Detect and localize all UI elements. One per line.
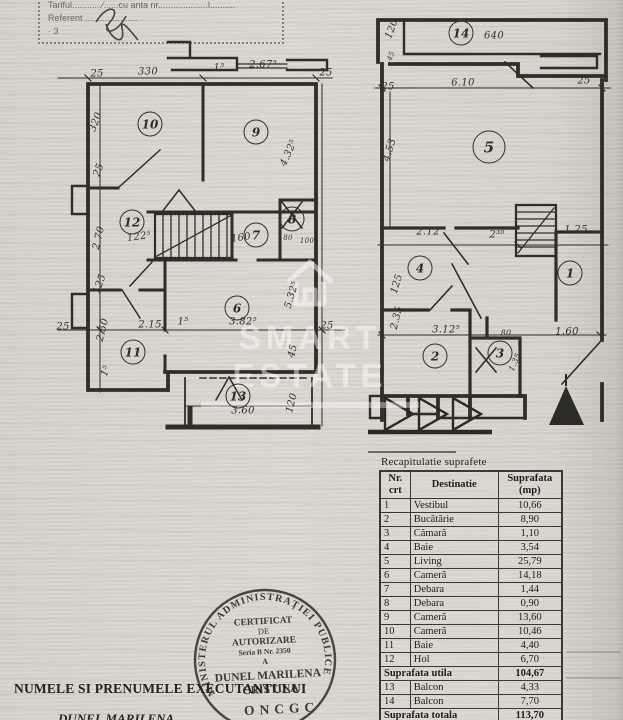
room-number: 5 xyxy=(473,131,506,164)
stamp-line-de: DE xyxy=(258,626,270,637)
header-destinatie: Destinatie xyxy=(410,471,498,499)
scanned-floor-plan-document: Tariful............⁄......cu anta nr....… xyxy=(0,0,623,720)
header-nr-crt: Nr. crt xyxy=(380,471,410,499)
dimension-label: 2.67⁵ xyxy=(249,60,277,71)
room-number: 1 xyxy=(558,261,583,286)
stamp-line-seria: Seria B Nr. 2350 xyxy=(238,646,291,658)
table-row: 10Cameră10,46 xyxy=(380,625,562,639)
executant-label: NUMELE SI PRENUMELE EXECUTANTULUI xyxy=(14,681,307,697)
table-row: 13Balcon4,33 xyxy=(380,681,562,695)
room-number: 9 xyxy=(244,120,269,145)
table-row: 2Bucătărie8,90 xyxy=(380,513,562,527)
signature-squiggle xyxy=(96,9,138,40)
dimension-label: 640 xyxy=(484,31,504,42)
areas-table: Nr. crt Destinatie Suprafata (mp) 1Vesti… xyxy=(379,470,563,720)
table-row: 9Cameră13,60 xyxy=(380,611,562,625)
table-row: 12Hol6,70 xyxy=(380,653,562,667)
dimension-label: 100 xyxy=(300,237,314,245)
summary-row: Suprafata totala113,70 xyxy=(380,709,562,720)
summary-row: Suprafata utila104,67 xyxy=(380,667,562,681)
stamp-line-a: A xyxy=(262,657,268,666)
table-row: 11Baie4,40 xyxy=(380,639,562,653)
room-number: 14 xyxy=(449,21,474,46)
table-row: 1Vestibul10,66 xyxy=(380,499,562,513)
table-row: 7Debara1,44 xyxy=(380,583,562,597)
dimension-label: 25 xyxy=(56,322,69,333)
room-number: 2 xyxy=(423,344,448,369)
room-number: 11 xyxy=(121,340,146,365)
executant-name: DUNEL MARILENA xyxy=(58,711,174,720)
areas-table-section: Recapitulatie suprafete Nr. crt Destinat… xyxy=(379,456,563,720)
dimension-label: 2.15 xyxy=(138,320,161,331)
direction-triangles xyxy=(368,398,492,452)
dimension-label: 80 xyxy=(501,329,512,338)
room-number: 7 xyxy=(244,223,269,248)
table-row: 4Baie3,54 xyxy=(380,541,562,555)
dimension-label: 1⁵ xyxy=(214,63,225,74)
room-number: 6 xyxy=(225,296,250,321)
dimension-label: 2³⁰ xyxy=(489,230,504,241)
dimension-label: 6.10 xyxy=(451,78,474,89)
dimension-label: 25 xyxy=(90,69,103,80)
room-number: 10 xyxy=(138,112,163,137)
dimension-label: 330 xyxy=(138,67,158,78)
room-number: 12 xyxy=(120,210,145,235)
table-row: 14Balcon7,70 xyxy=(380,695,562,709)
dimension-label: 25 xyxy=(320,321,333,332)
header-suprafata: Suprafata (mp) xyxy=(498,471,562,499)
north-arrow-icon xyxy=(549,374,584,425)
dimension-label: 1.60 xyxy=(555,327,578,338)
table-row: 5Living25,79 xyxy=(380,555,562,569)
dimension-label: 25 xyxy=(381,82,394,93)
authorization-stamp: MINISTERUL ADMINISTRAȚIEI PUBLICE CERTIF… xyxy=(184,579,346,720)
room-number: 4 xyxy=(408,256,433,281)
dimension-label: 25 xyxy=(319,68,332,79)
scan-artifact-lines xyxy=(566,652,622,678)
dimension-label: 25 xyxy=(577,76,590,87)
dimension-label: 1.25 xyxy=(564,225,587,236)
room-number: 8 xyxy=(280,207,305,232)
dimension-label: 1⁵ xyxy=(178,317,189,328)
areas-table-header-row: Nr. crt Destinatie Suprafata (mp) xyxy=(380,471,562,499)
areas-table-title: Recapitulatie suprafete xyxy=(379,456,563,468)
table-row: 3Cămară1,10 xyxy=(380,527,562,541)
dimension-label: 3.12⁵ xyxy=(432,325,460,336)
room-number: 3 xyxy=(488,341,513,366)
table-row: 6Cameră14,18 xyxy=(380,569,562,583)
dimension-label: 2.12 xyxy=(416,227,439,238)
dimension-label: 80 xyxy=(283,234,293,242)
table-row: 8Debara0,90 xyxy=(380,597,562,611)
room-number: 13 xyxy=(226,384,251,409)
